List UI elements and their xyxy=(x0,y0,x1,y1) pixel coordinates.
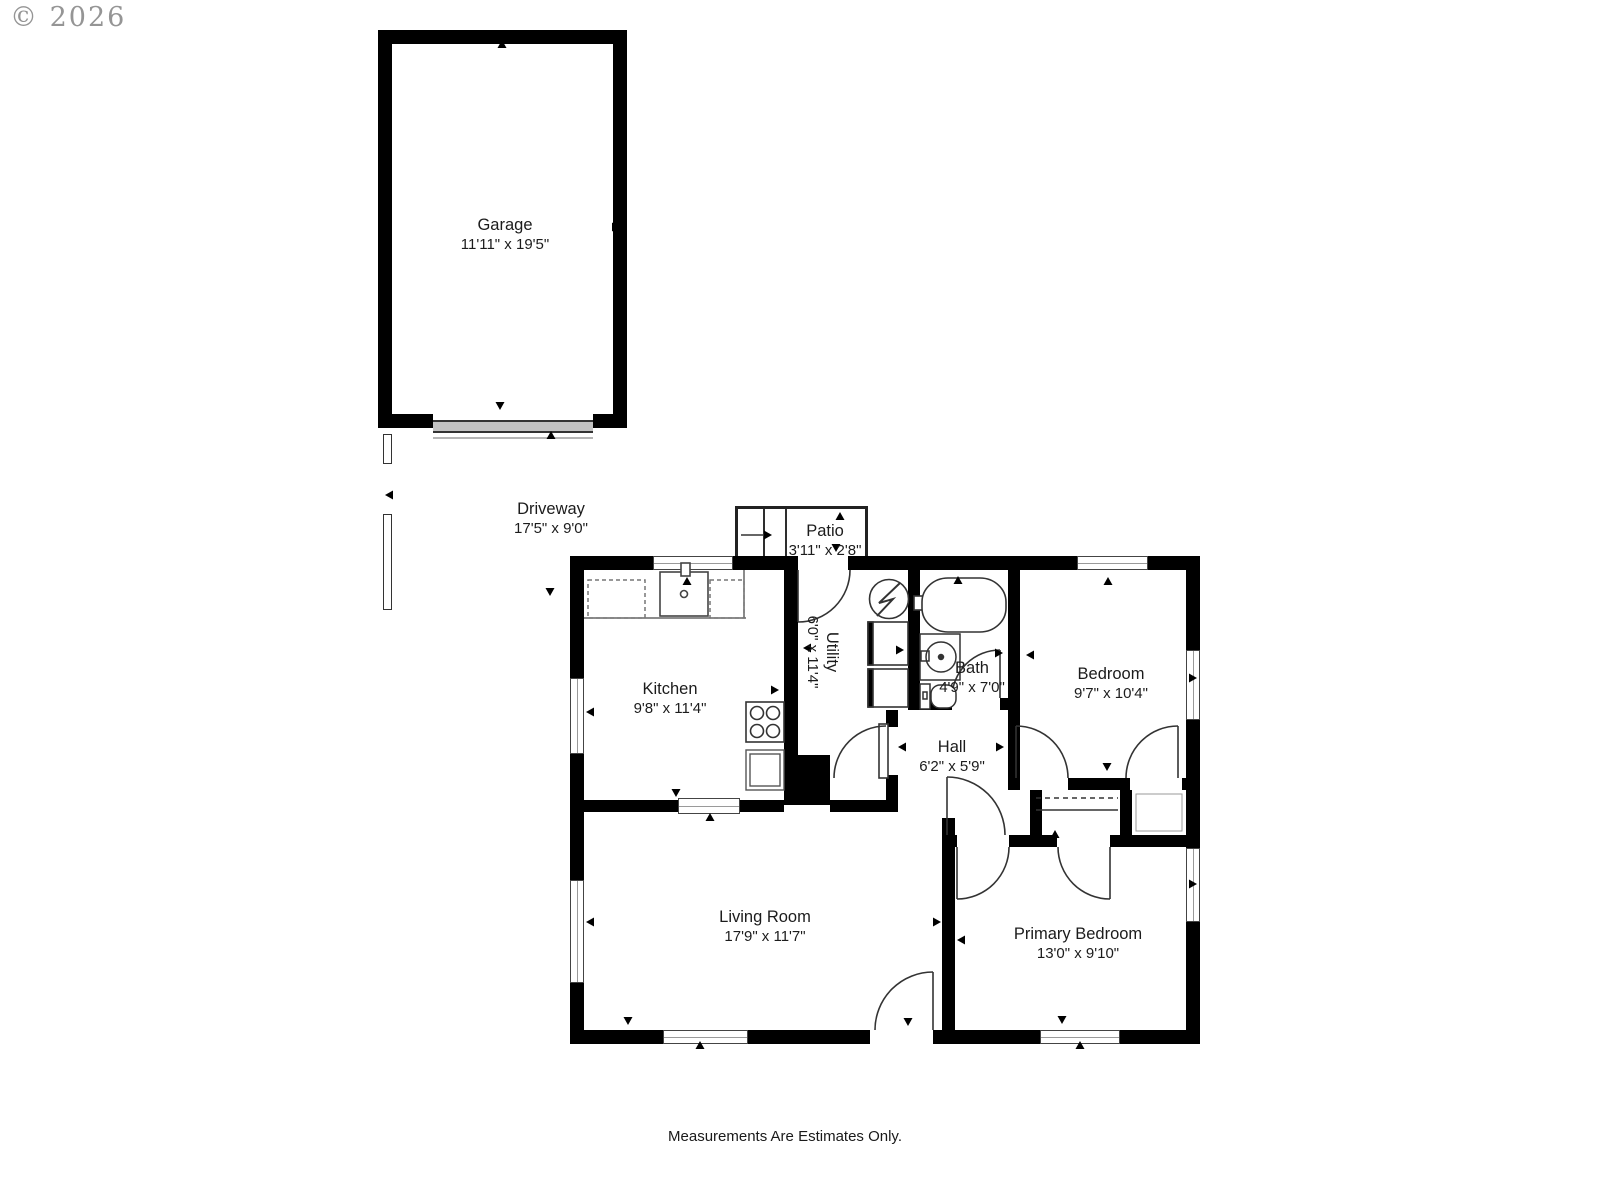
range-icon xyxy=(746,702,784,742)
door-swing-icon-hall-corner xyxy=(947,777,1005,835)
room-label-bedroom: Bedroom9'7" x 10'4" xyxy=(1074,665,1148,703)
room-label-utility: Utility6'0" x 11'4" xyxy=(803,616,841,689)
closet-rod-icon xyxy=(1036,794,1182,831)
kitchen-base-cabinet xyxy=(746,750,784,790)
room-label-driveway: Driveway17'5" x 9'0" xyxy=(514,500,588,538)
cabinet-icon xyxy=(588,580,645,618)
dryer-icon xyxy=(868,669,908,707)
fixtures-layer xyxy=(0,0,1600,1200)
room-label-primary-bedroom: Primary Bedroom13'0" x 9'10" xyxy=(1014,925,1142,963)
steps-icon xyxy=(741,531,772,540)
door-swing-icon-primary xyxy=(957,847,1009,899)
room-label-patio: Patio3'11" x 2'8" xyxy=(789,522,862,560)
door-swing-icon-bedroom xyxy=(1016,726,1068,778)
room-label-bath: Bath4'9" x 7'0" xyxy=(939,659,1005,697)
kitchen-sink-icon xyxy=(660,563,708,616)
door-swing-icon-front-entry xyxy=(875,972,933,1030)
door-swing-icon-primary-closet xyxy=(1058,847,1110,899)
room-label-living-room: Living Room17'9" x 11'7" xyxy=(719,908,811,946)
door-swing-icon-utility-hall xyxy=(834,724,888,778)
door-swing-icon-patio-entry xyxy=(798,570,850,622)
cabinet-icon xyxy=(710,580,744,618)
room-label-garage: Garage11'11" x 19'5" xyxy=(461,216,549,254)
door-swing-icon-bedroom-closet xyxy=(1126,726,1178,778)
bathtub-icon xyxy=(914,578,1006,632)
washer-icon xyxy=(868,622,908,665)
water-heater-icon xyxy=(870,580,909,619)
room-label-kitchen: Kitchen9'8" x 11'4" xyxy=(634,680,707,718)
room-label-hall: Hall6'2" x 5'9" xyxy=(919,738,985,776)
floor-plan-canvas: © 2026 Measurements Are Estimates Only. xyxy=(0,0,1600,1200)
